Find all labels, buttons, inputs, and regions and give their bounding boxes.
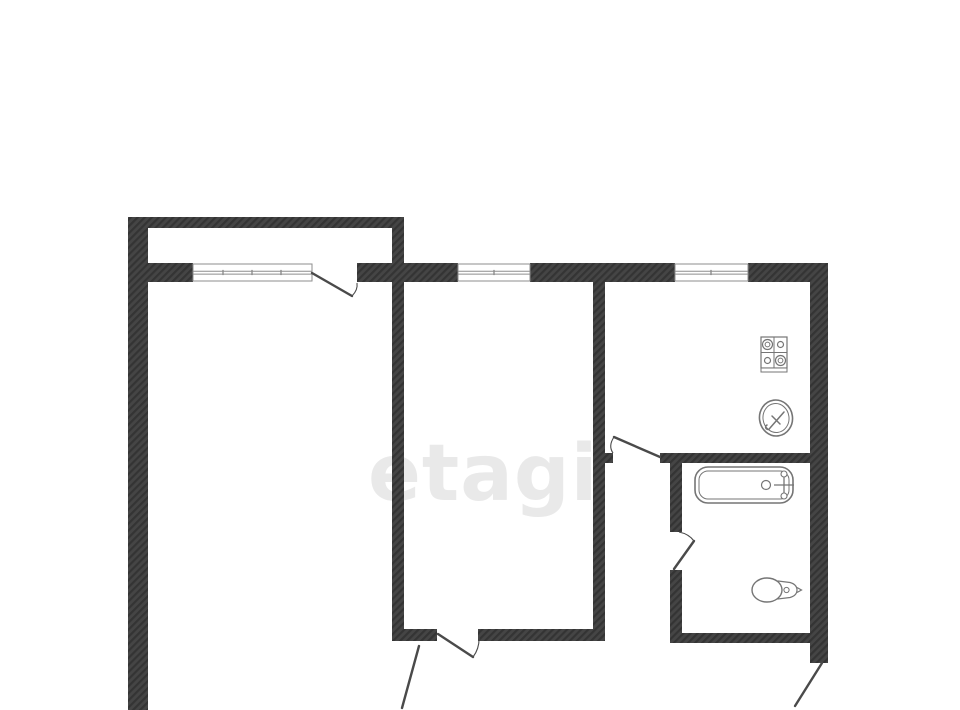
kitchen-door-leaf: [614, 437, 660, 457]
wall-bathroom-left-lower: [670, 570, 682, 643]
balcony-door: [312, 273, 357, 296]
entrance-door-leaf-leaf: [795, 663, 822, 706]
wall-kitchen-door-stub: [593, 453, 613, 463]
wall-exterior-left: [128, 217, 148, 710]
living-room-door-leaf-leaf: [402, 646, 419, 708]
wall-exterior-right: [810, 263, 828, 663]
wall-bathroom-left-upper: [670, 463, 682, 532]
wall-facade-balcony-door-to-room-window: [357, 263, 458, 282]
wall-living-room-divider: [392, 217, 404, 640]
bathroom-door: [674, 532, 694, 569]
entrance-door-leaf: [795, 663, 822, 706]
bathtub-faucet-knob: [781, 493, 787, 499]
kitchen-sink-icon: [757, 398, 795, 438]
toilet-bowl: [752, 578, 782, 602]
floorplan-svg: etagi: [0, 0, 960, 710]
wall-middle-room-bottom-left: [392, 629, 437, 641]
wall-facade-left-of-balcony-window: [148, 263, 193, 282]
wall-facade-room-window-to-kitchen-window: [530, 263, 675, 282]
kitchen-door-swing-arc: [611, 437, 614, 453]
middle-room-door: [438, 634, 479, 657]
wall-bathroom-top: [660, 453, 810, 463]
middle-room-door-leaf: [438, 634, 473, 657]
wall-middle-room-bottom-right: [478, 629, 605, 641]
toilet-icon: [752, 578, 802, 602]
wall-bathroom-bottom: [670, 633, 810, 643]
middle-room-window: [458, 264, 530, 281]
balcony-door-leaf: [312, 273, 352, 296]
balcony-door-swing-arc: [352, 283, 357, 296]
wall-balcony-front: [128, 217, 404, 228]
bathroom-door-swing-arc: [679, 532, 694, 541]
living-room-door-leaf: [402, 646, 419, 708]
floorplan-image: etagi: [0, 0, 960, 710]
bathtub-icon: [695, 467, 794, 503]
bathtub-faucet-knob: [781, 471, 787, 477]
bathroom-door-leaf: [674, 541, 694, 569]
toilet-valve: [797, 588, 802, 593]
stove-icon: [761, 337, 787, 372]
kitchen-window: [675, 264, 748, 281]
fixtures-layer: [695, 337, 802, 602]
kitchen-door: [611, 437, 660, 457]
balcony-window: [193, 264, 312, 281]
